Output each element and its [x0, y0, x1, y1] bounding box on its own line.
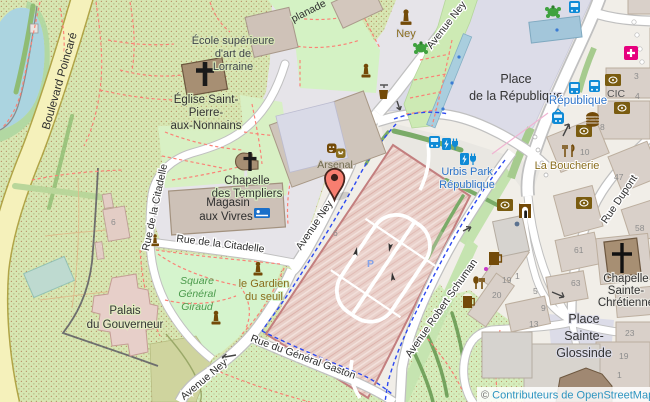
svg-text:P: P	[367, 258, 374, 270]
svg-text:Glossinde: Glossinde	[556, 346, 612, 360]
svg-text:Pierre-: Pierre-	[189, 107, 224, 119]
svg-text:d'art de: d'art de	[215, 48, 251, 60]
svg-text:6: 6	[111, 217, 116, 227]
svg-text:1: 1	[617, 370, 622, 380]
svg-text:Palais: Palais	[109, 305, 141, 317]
svg-text:9: 9	[541, 303, 546, 313]
svg-text:du Gouverneur: du Gouverneur	[87, 319, 164, 331]
svg-text:5: 5	[533, 286, 538, 296]
svg-text:Église Saint-: Église Saint-	[174, 93, 239, 106]
svg-text:19: 19	[502, 275, 512, 285]
svg-text:Chapelle: Chapelle	[603, 273, 648, 285]
svg-text:63: 63	[571, 278, 581, 288]
svg-text:19: 19	[619, 351, 629, 361]
svg-text:3: 3	[634, 71, 639, 81]
svg-text:Sainte-: Sainte-	[608, 285, 645, 297]
svg-text:23: 23	[625, 328, 635, 338]
svg-text:© Contributeurs de OpenStreetM: © Contributeurs de OpenStreetMap	[481, 390, 650, 402]
svg-text:Ney: Ney	[396, 28, 416, 40]
svg-text:20: 20	[492, 290, 502, 300]
svg-text:Général: Général	[178, 288, 216, 300]
svg-text:La Boucherie: La Boucherie	[535, 160, 600, 172]
svg-text:Chapelle: Chapelle	[224, 175, 269, 187]
svg-text:le Gardien: le Gardien	[239, 278, 290, 290]
svg-text:Magasin: Magasin	[206, 197, 249, 209]
svg-text:République: République	[549, 95, 607, 107]
svg-text:Chrétienne: Chrétienne	[598, 297, 650, 309]
svg-text:Sainte-: Sainte-	[564, 329, 604, 343]
svg-text:République: République	[439, 179, 495, 191]
svg-text:CIC: CIC	[607, 88, 626, 100]
svg-text:1: 1	[515, 271, 520, 281]
svg-text:6: 6	[333, 228, 338, 238]
svg-text:58: 58	[635, 223, 645, 233]
svg-text:Urbis Park: Urbis Park	[441, 166, 493, 178]
svg-text:61: 61	[574, 245, 584, 255]
svg-text:4: 4	[635, 91, 640, 101]
svg-text:Place: Place	[568, 312, 599, 326]
svg-text:aux-Nonnains: aux-Nonnains	[171, 120, 242, 132]
svg-text:47: 47	[614, 172, 624, 182]
svg-text:8: 8	[600, 122, 605, 132]
svg-text:Giraud: Giraud	[181, 301, 214, 313]
svg-text:10: 10	[580, 147, 590, 157]
svg-text:Square: Square	[180, 275, 214, 287]
svg-text:Place: Place	[500, 72, 531, 86]
svg-text:du seuil: du seuil	[245, 291, 283, 303]
svg-text:13: 13	[529, 319, 539, 329]
svg-text:aux Vivres: aux Vivres	[199, 211, 253, 223]
svg-text:Lorraine: Lorraine	[213, 61, 253, 73]
svg-text:École supérieure: École supérieure	[192, 34, 275, 47]
